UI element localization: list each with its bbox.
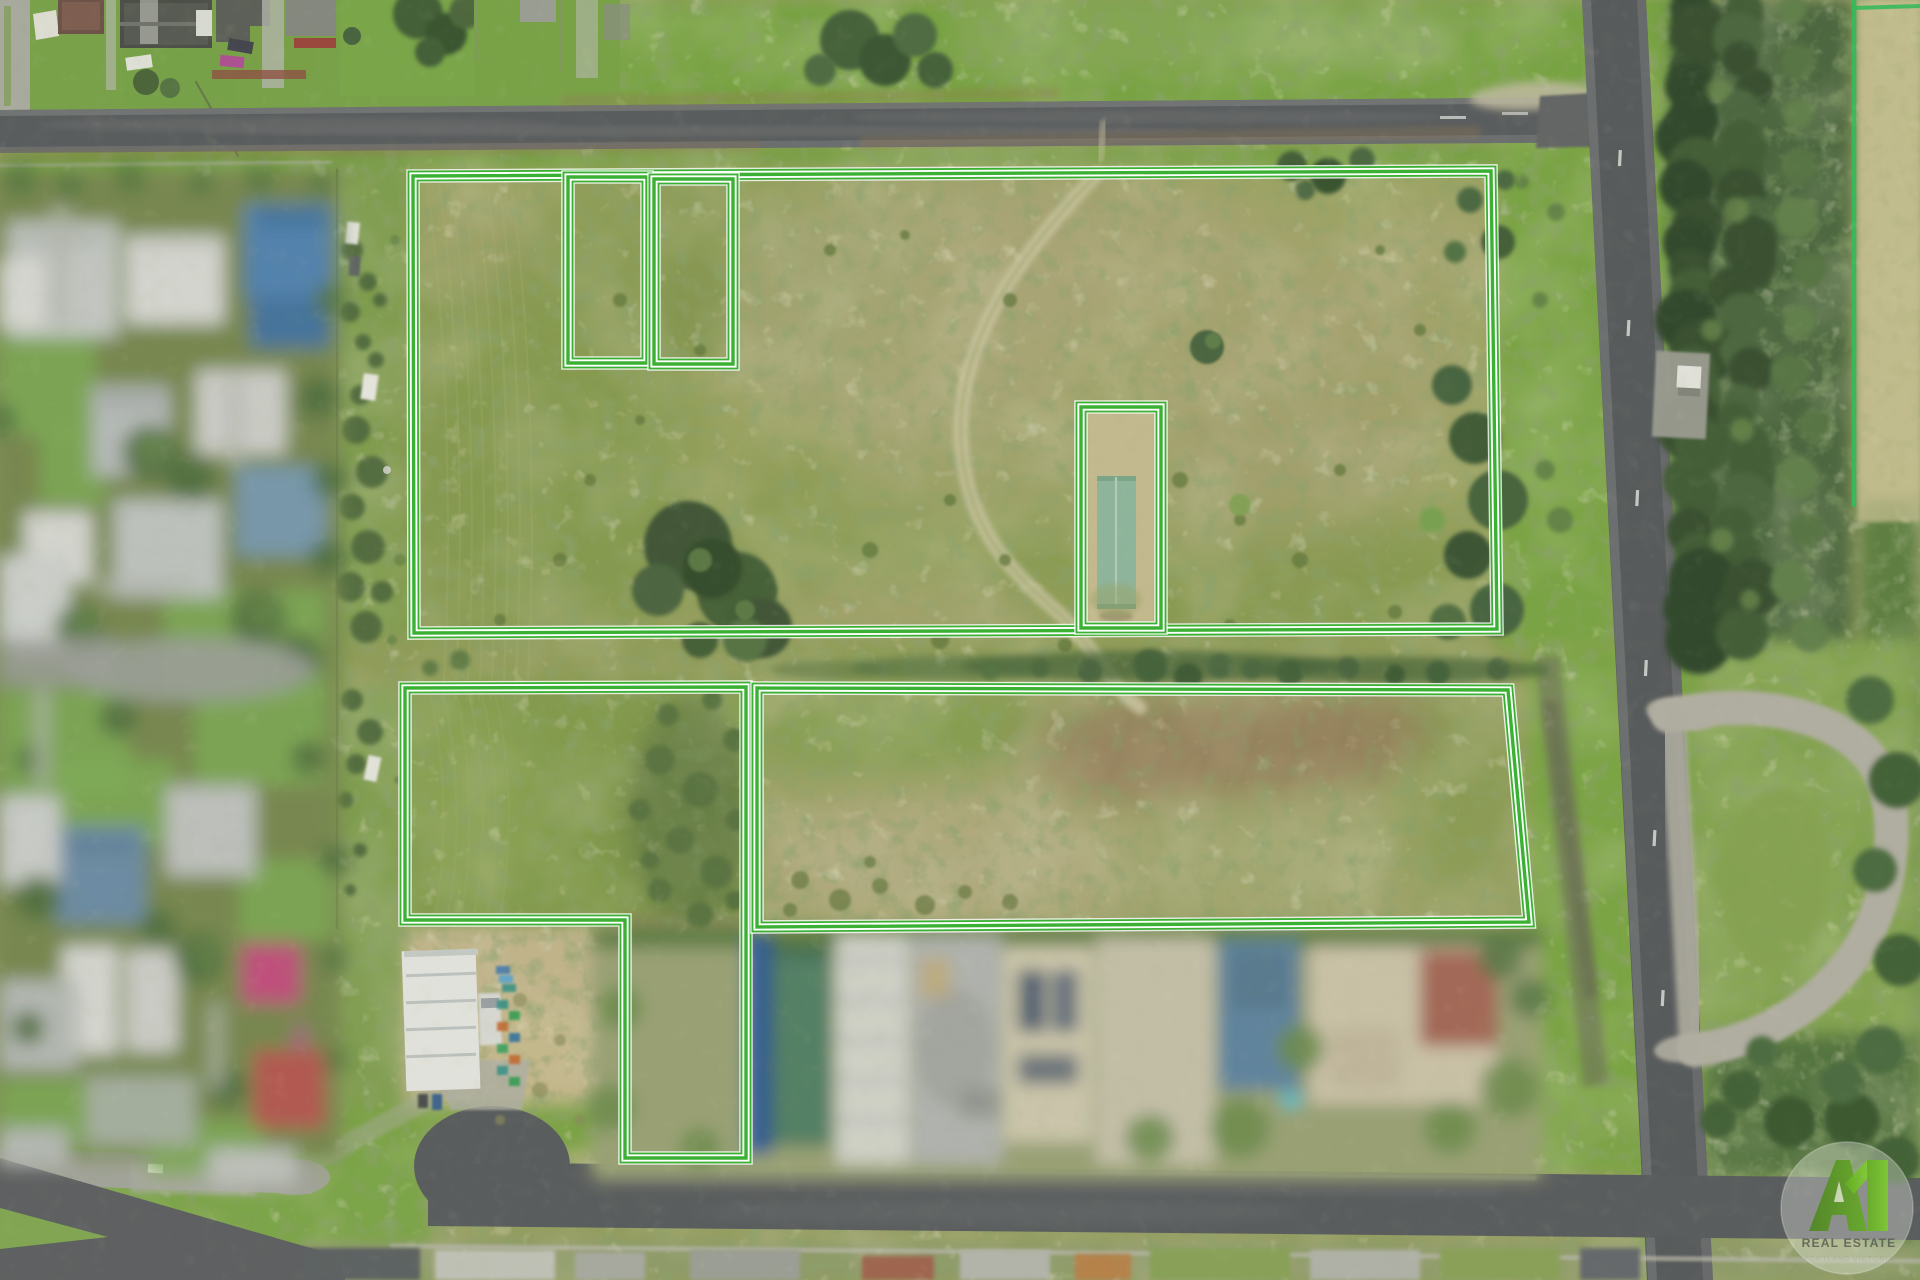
svg-text:PORTLAND VICTORIA: PORTLAND VICTORIA	[1804, 1256, 1894, 1263]
svg-text:REAL ESTATE: REAL ESTATE	[1802, 1236, 1897, 1250]
